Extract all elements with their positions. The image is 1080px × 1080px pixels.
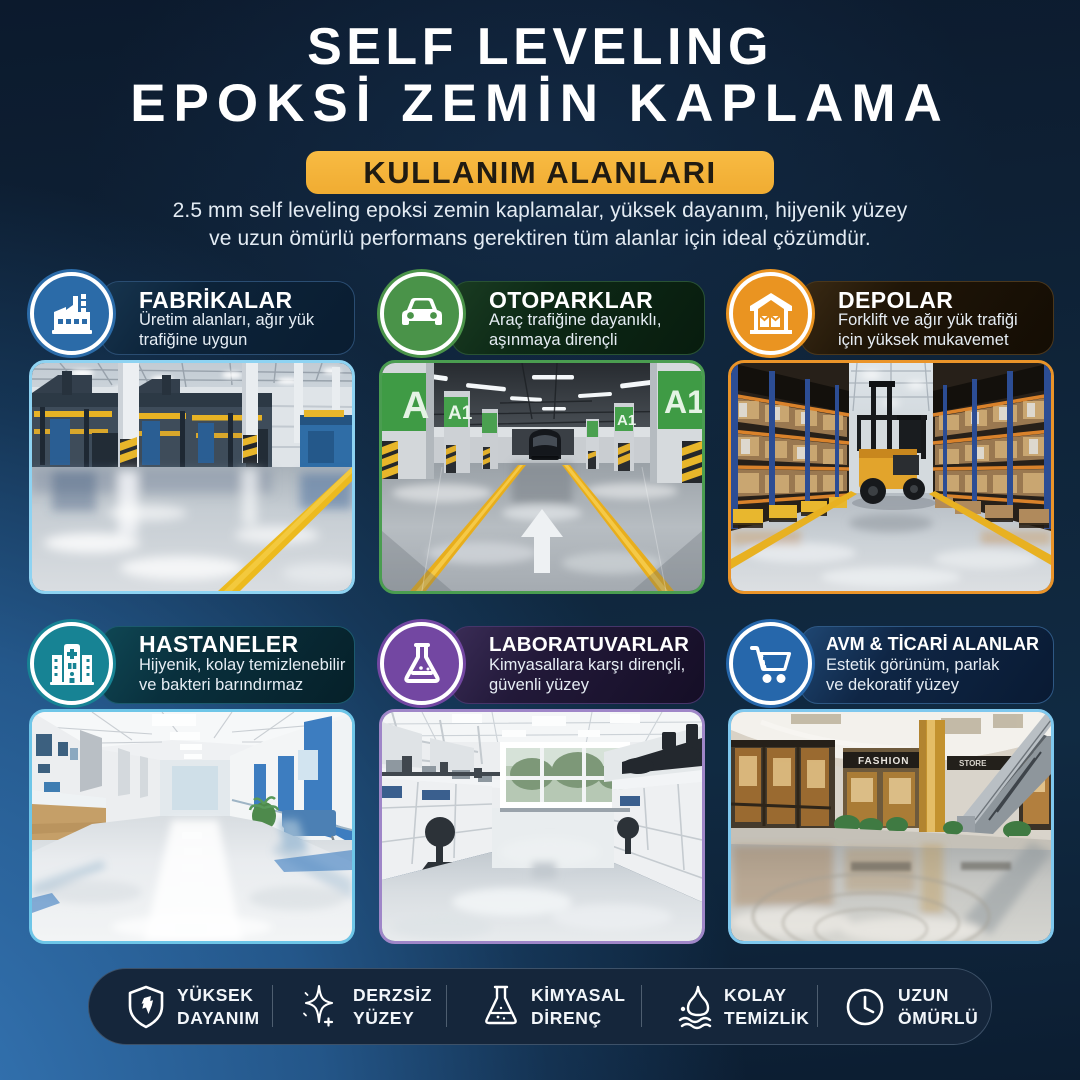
svg-text:FASHION: FASHION xyxy=(858,756,909,767)
svg-text:A1: A1 xyxy=(448,403,473,424)
svg-text:A1: A1 xyxy=(664,384,702,420)
svg-text:A: A xyxy=(402,385,429,427)
svg-text:STORE: STORE xyxy=(959,759,987,768)
svg-text:A1: A1 xyxy=(617,412,636,429)
